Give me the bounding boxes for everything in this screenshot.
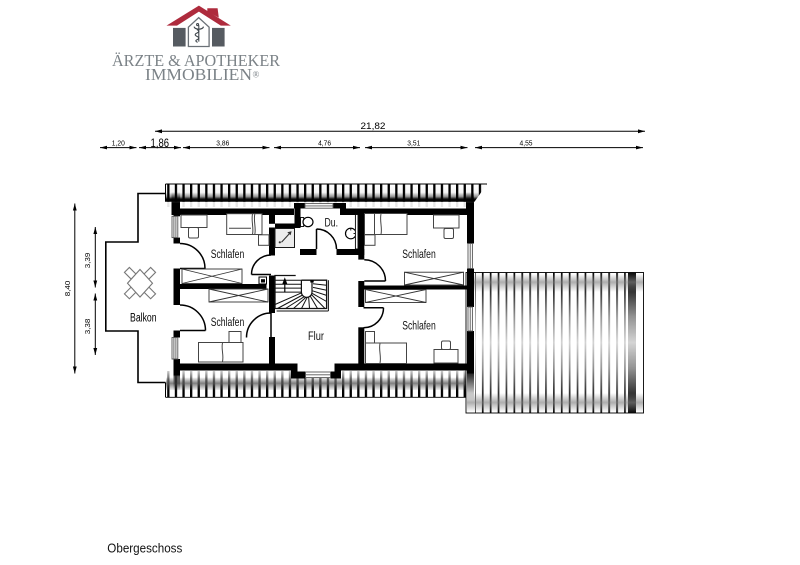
- svg-text:Obergeschoss: Obergeschoss: [107, 541, 182, 556]
- svg-text:Flur: Flur: [308, 329, 324, 343]
- svg-text:3,39: 3,39: [83, 253, 92, 269]
- svg-text:Schlafen: Schlafen: [211, 247, 245, 261]
- svg-text:®: ®: [253, 70, 260, 80]
- svg-text:4,55: 4,55: [520, 138, 533, 147]
- svg-text:Balkon: Balkon: [130, 313, 157, 325]
- svg-text:Schlafen: Schlafen: [402, 247, 436, 261]
- svg-text:IMMOBILIEN: IMMOBILIEN: [145, 65, 252, 84]
- svg-text:1,20: 1,20: [112, 138, 125, 147]
- svg-text:21,82: 21,82: [361, 121, 386, 132]
- svg-text:3,86: 3,86: [216, 138, 229, 147]
- svg-text:Du.: Du.: [325, 218, 339, 230]
- svg-text:Schlafen: Schlafen: [402, 319, 436, 333]
- svg-text:8,40: 8,40: [63, 281, 72, 297]
- svg-text:4,76: 4,76: [318, 138, 331, 147]
- svg-text:Schlafen: Schlafen: [211, 315, 245, 329]
- svg-text:3,38: 3,38: [83, 319, 92, 335]
- svg-text:3,51: 3,51: [407, 138, 420, 147]
- svg-text:1,86: 1,86: [151, 136, 170, 150]
